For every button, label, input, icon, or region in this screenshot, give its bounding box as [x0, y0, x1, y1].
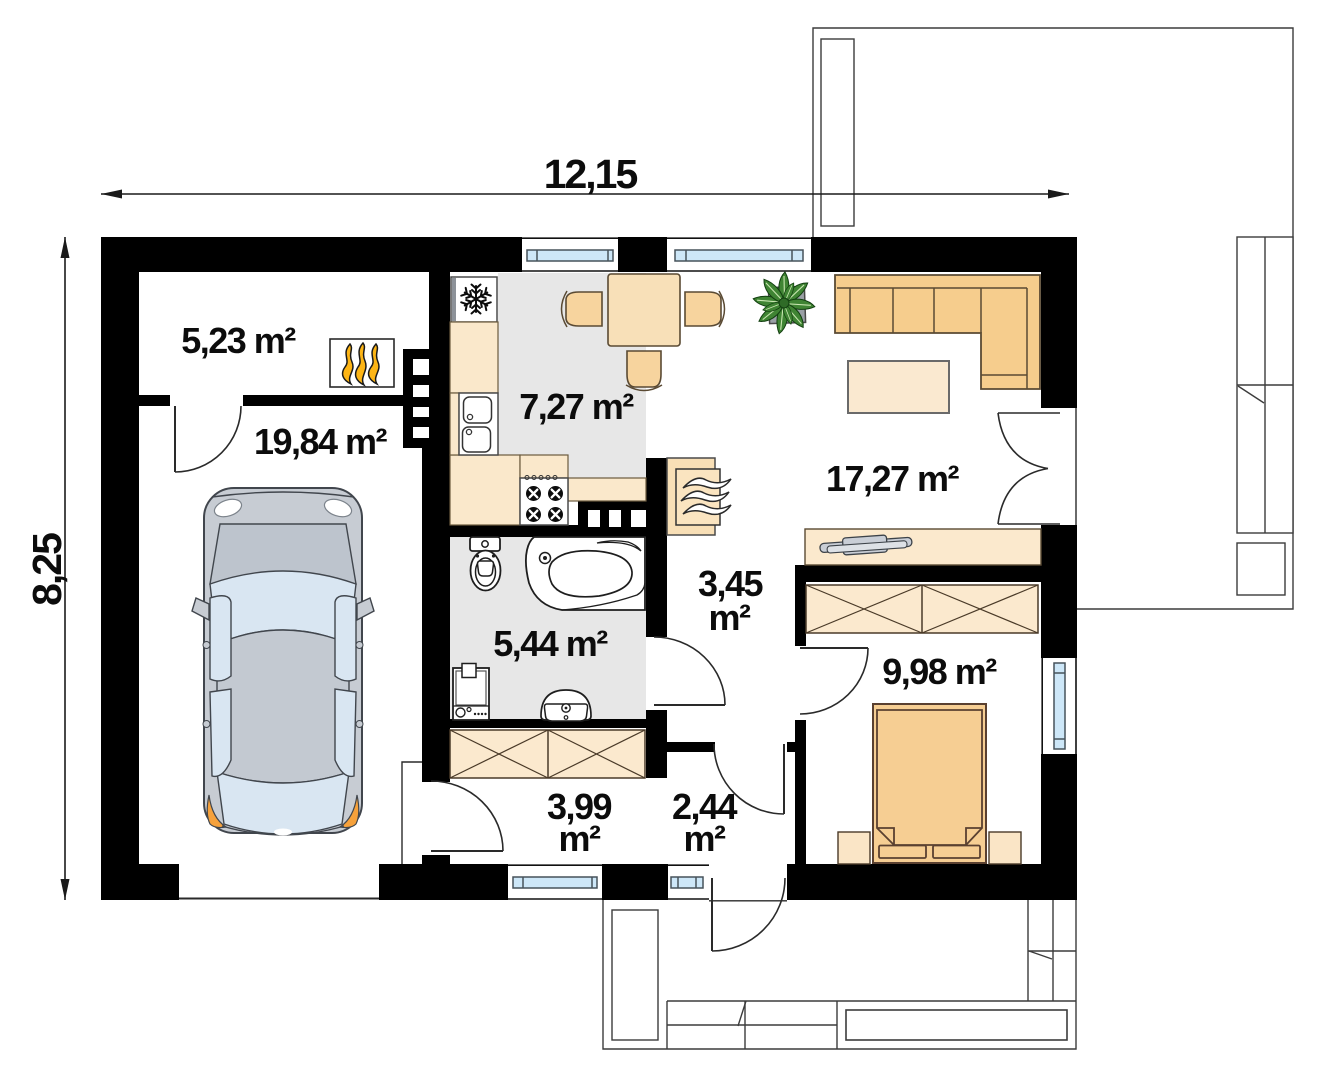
svg-text:5,23 m²: 5,23 m² — [181, 320, 296, 361]
svg-text:m²: m² — [709, 597, 752, 638]
svg-text:12,15: 12,15 — [544, 151, 638, 197]
svg-text:m²: m² — [684, 818, 727, 859]
svg-text:8,25: 8,25 — [24, 533, 70, 606]
svg-text:19,84 m²: 19,84 m² — [254, 421, 388, 462]
svg-text:7,27 m²: 7,27 m² — [519, 386, 634, 427]
svg-text:17,27 m²: 17,27 m² — [826, 458, 960, 499]
svg-text:m²: m² — [559, 818, 602, 859]
svg-text:9,98 m²: 9,98 m² — [882, 651, 997, 692]
svg-text:5,44 m²: 5,44 m² — [493, 623, 608, 664]
